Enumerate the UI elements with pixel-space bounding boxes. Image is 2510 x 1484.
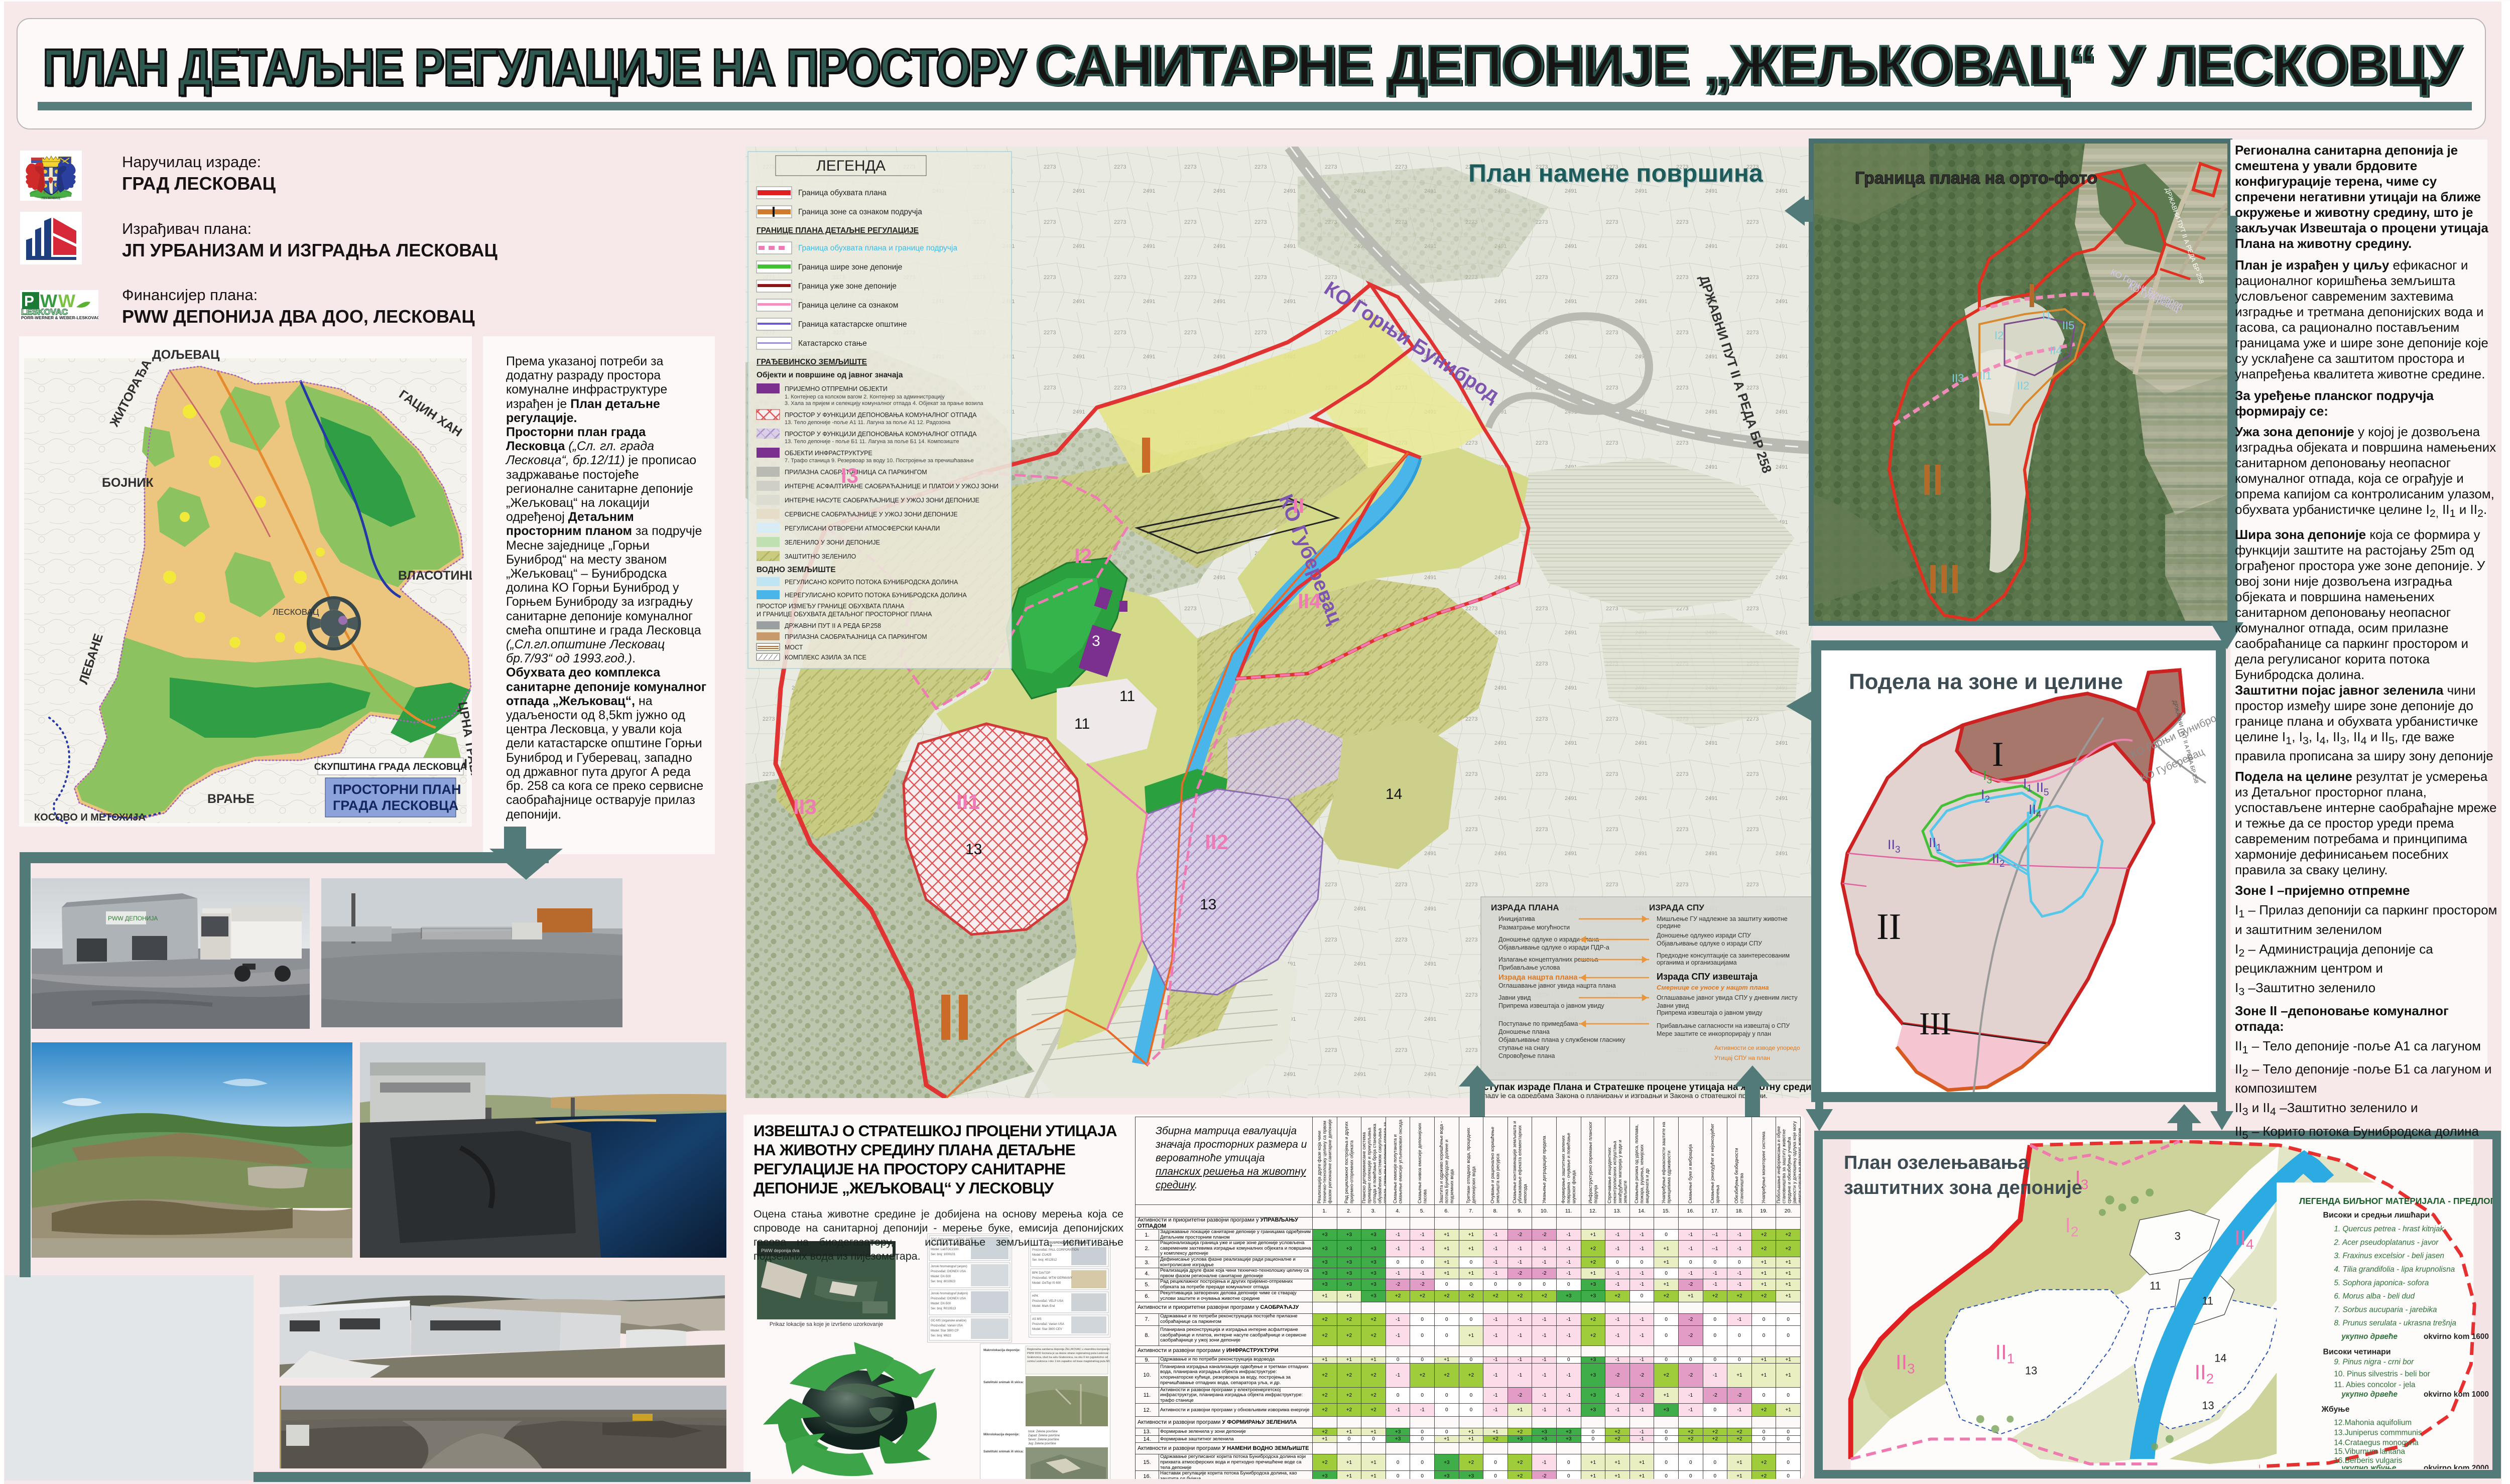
svg-text:Припрема извештаја о јавном ув: Припрема извештаја о јавном увиду [1657, 1009, 1763, 1016]
svg-text:11: 11 [1074, 716, 1090, 732]
svg-text:ВОДНО ЗЕМЉИШТЕ: ВОДНО ЗЕМЉИШТЕ [757, 566, 836, 574]
svg-text:Јавни увид: Јавни увид [1498, 994, 1531, 1001]
svg-text:ПРИЈЕМНО ОТПРЕМНИ ОБЈЕКТИ: ПРИЈЕМНО ОТПРЕМНИ ОБЈЕКТИ [785, 385, 888, 392]
svg-text:НЕРЕГУЛИСАНО КОРИТО ПОТОКА БУН: НЕРЕГУЛИСАНО КОРИТО ПОТОКА БУНИБРОДСКА Д… [785, 592, 967, 599]
svg-text:II: II [1876, 906, 1901, 948]
svg-text:Model: Star 3800 CEV: Model: Star 3800 CEV [1032, 1328, 1062, 1331]
svg-text:Смернице се уносе у нацрт план: Смернице се уносе у нацрт плана [1657, 984, 1769, 991]
svg-text:Доношење одлукео изради СПУ: Доношење одлукео изради СПУ [1657, 932, 1751, 939]
svg-text:Model: OxiTop IS 600: Model: OxiTop IS 600 [1032, 1282, 1061, 1285]
svg-text:РЕГУЛИСАНО КОРИТО ПОТОКА БУНИБ: РЕГУЛИСАНО КОРИТО ПОТОКА БУНИБРОДСКА ДОЛ… [785, 579, 958, 586]
svg-text:Jug: Zelene površine: Jug: Zelene površine [1028, 1442, 1056, 1445]
svg-text:ИНТЕРНЕ АСФАЛТИРАНЕ САОБРАЋАЈН: ИНТЕРНЕ АСФАЛТИРАНЕ САОБРАЋАЈНИЦЕ И ПЛАТ… [785, 483, 998, 490]
svg-text:III: III [1919, 1006, 1951, 1041]
svg-text:ПРОСТОРНИ ПЛАН: ПРОСТОРНИ ПЛАН [333, 782, 461, 797]
svg-text:Istok: Zelene površine: Istok: Zelene površine [1028, 1430, 1058, 1433]
svg-text:II4: II4 [1298, 589, 1321, 613]
svg-text:Објављивање плана у службеном: Објављивање плана у службеном гласнику [1498, 1036, 1625, 1043]
svg-text:9. Pinus nigra - crni bor: 9. Pinus nigra - crni bor [2334, 1358, 2414, 1367]
svg-text:Граница шире зоне депоније: Граница шире зоне депоније [798, 263, 902, 272]
svg-text:okvirno kom 2000: okvirno kom 2000 [2424, 1464, 2489, 1469]
svg-text:ЛЕСКОВАЦ: ЛЕСКОВАЦ [273, 607, 319, 617]
svg-text:ЛЕСКОВАЦ: ЛЕСКОВАЦ [41, 196, 60, 200]
svg-text:Proizvođač: Varian USA: Proizvođač: Varian USA [1032, 1323, 1064, 1326]
svg-text:Proizvođač: Varian USA: Proizvođač: Varian USA [931, 1324, 963, 1327]
svg-text:ПРОСТОР ИЗМЕЂУ ГРАНИЦЕ ОБУХВАТ: ПРОСТОР ИЗМЕЂУ ГРАНИЦЕ ОБУХВАТА ПЛАНА [757, 603, 905, 610]
svg-text:7. Трафо станица 9. Резервоар: 7. Трафо станица 9. Резервоар за воду 10… [785, 458, 974, 464]
svg-text:4. Tilia grandifolia - lipa kr: 4. Tilia grandifolia - lipa krupnolisna [2334, 1265, 2455, 1274]
svg-text:ПРОСТОР У ФУНКЦИЈИ ДЕПОНОВАЊА: ПРОСТОР У ФУНКЦИЈИ ДЕПОНОВАЊА КОМУНАЛНОГ… [785, 431, 977, 438]
svg-text:13: 13 [965, 841, 982, 858]
svg-text:II4: II4 [2050, 344, 2062, 357]
svg-text:13: 13 [1200, 896, 1216, 913]
svg-text:Жбуње: Жбуње [2321, 1405, 2350, 1414]
svg-text:ИНТЕРНЕ НАСУТЕ САОБРАЋАЈНИЦЕ У: ИНТЕРНЕ НАСУТЕ САОБРАЋАЈНИЦЕ У УЖОЈ ЗОНИ… [785, 497, 979, 504]
svg-text:ГРАДА ЛЕСКОВЦА: ГРАДА ЛЕСКОВЦА [333, 798, 458, 813]
svg-text:13. Тело депоније - поље Б1: 13. Тело депоније - поље Б1 11. Лагуна з… [785, 439, 959, 445]
svg-text:ДРЖАВНИ ПУТ II А РЕДА БР.258: ДРЖАВНИ ПУТ II А РЕДА БР.258 [785, 622, 881, 629]
svg-text:3. Хала за пријем и селекцију: 3. Хала за пријем и селекцију комуналног… [785, 400, 983, 407]
svg-text:11: 11 [2202, 1295, 2213, 1307]
svg-text:Граница целине са ознаком: Граница целине са ознаком [798, 301, 898, 310]
svg-text:Утицај СПУ на план: Утицај СПУ на план [1714, 1054, 1770, 1061]
svg-text:Објављивање одлуке о изради СП: Објављивање одлуке о изради СПУ [1657, 940, 1762, 947]
svg-text:13: 13 [2202, 1399, 2214, 1412]
svg-text:Спровођење плана: Спровођење плана [1498, 1052, 1555, 1059]
svg-text:okvirno kom 1600: okvirno kom 1600 [2424, 1332, 2489, 1341]
svg-text:ЗЕЛЕНИЛО У ЗОНИ ДЕПОНИЈЕ: ЗЕЛЕНИЛО У ЗОНИ ДЕПОНИЈЕ [785, 539, 880, 546]
svg-text:13. Тело депоније -поље А1 1: 13. Тело депоније -поље А1 11. Лагуна за… [785, 420, 951, 426]
svg-text:Sever: Zelene površine: Sever: Zelene površine [1028, 1438, 1059, 1441]
svg-text:СЕРВИСНЕ САОБРАЋАЈНИЦЕ У УЖОЈ: СЕРВИСНЕ САОБРАЋАЈНИЦЕ У УЖОЈ ЗОНИ ДЕПОН… [785, 511, 958, 518]
svg-text:ВРАЊЕ: ВРАЊЕ [207, 792, 255, 806]
svg-text:I: I [1992, 735, 2003, 774]
svg-text:Makrolokacija deponije:: Makrolokacija deponije: [983, 1348, 1021, 1352]
svg-text:Мишљење ГУ надлежне за заштиту: Мишљење ГУ надлежне за заштиту животне [1657, 915, 1788, 922]
svg-text:ИЗРАДА ПЛАНА: ИЗРАДА ПЛАНА [1491, 903, 1559, 912]
svg-text:КОМПЛЕКС АЗИЛА ЗА ПСЕ: КОМПЛЕКС АЗИЛА ЗА ПСЕ [785, 654, 866, 661]
svg-text:HPK: HPK [1032, 1295, 1038, 1298]
svg-text:Мере заштите се инкорпорирају: Мере заштите се инкорпорирају у план [1657, 1030, 1771, 1037]
svg-text:3. Fraxinus excelsior - beli j: 3. Fraxinus excelsior - beli jasen [2334, 1252, 2444, 1260]
svg-text:1. Контејнер са колском вагом: 1. Контејнер са колском вагом 2. Контејн… [785, 394, 945, 400]
svg-text:1. Quercus petrea - hrast kit: 1. Quercus petrea - hrast kitnjak [2334, 1225, 2444, 1234]
svg-text:Regionalna sanitarna deponija: Regionalna sanitarna deponija ŽELJKOVAC … [1027, 1347, 1109, 1351]
svg-text:centra Leskovca i oko 1 km zap: centra Leskovca i oko 1 km zapadno od tr… [1027, 1360, 1110, 1363]
svg-text:Граница уже зоне депоније: Граница уже зоне депоније [798, 282, 897, 291]
svg-text:II: II [1293, 494, 1304, 517]
svg-text:Proizvođač: WTW GERMANY: Proizvođač: WTW GERMANY [1032, 1277, 1072, 1280]
svg-text:okvirno kom 1000: okvirno kom 1000 [2424, 1390, 2489, 1399]
svg-text:AS MS: AS MS [1032, 1318, 1042, 1321]
svg-text:11: 11 [2150, 1280, 2161, 1292]
svg-text:2. Acer pseudoplatanus - javo: 2. Acer pseudoplatanus - javor [2333, 1238, 2439, 1247]
svg-text:Високи четинари: Високи четинари [2323, 1348, 2391, 1357]
svg-text:РЕГУЛИСАНИ ОТВОРЕНИ АТМОСФЕРСК: РЕГУЛИСАНИ ОТВОРЕНИ АТМОСФЕРСКИ КАНАЛИ [785, 525, 940, 532]
svg-text:II3: II3 [793, 795, 817, 819]
svg-text:Активности се изводе упоредо: Активности се изводе упоредо [1714, 1044, 1800, 1051]
svg-text:ОБЈЕКТИ ИНФРАСТРУКТУРЕ: ОБЈЕКТИ ИНФРАСТРУКТУРЕ [785, 450, 872, 457]
svg-text:Model: DX-500: Model: DX-500 [931, 1302, 951, 1305]
svg-text:Израда СПУ извештаја: Израда СПУ извештаја [1657, 972, 1758, 982]
svg-text:Граница зоне са ознаком подруч: Граница зоне са ознаком подручја [798, 208, 922, 216]
svg-text:Граница обухвата плана: Граница обухвата плана [798, 189, 887, 197]
svg-text:Model: Mark End: Model: Mark End [1032, 1305, 1055, 1308]
svg-text:Поступак израде Плана и Страте: Поступак израде Плана и Стратешке процен… [1471, 1082, 1813, 1093]
svg-text:средине: средине [1657, 922, 1681, 929]
svg-text:ГРАЂЕВИНСКО ЗЕМЉИШТЕ: ГРАЂЕВИНСКО ЗЕМЉИШТЕ [757, 358, 867, 366]
svg-text:Ser. broj: R010513: Ser. broj: R010513 [931, 1307, 956, 1310]
svg-text:Прибављање услова: Прибављање услова [1498, 964, 1560, 971]
svg-text:PORR-WERNER & WEBER-LESKOVAC: PORR-WERNER & WEBER-LESKOVAC [21, 315, 98, 320]
svg-text:II2: II2 [2017, 379, 2029, 392]
svg-text:II1: II1 [956, 790, 980, 814]
svg-text:Прибављање сагласности на изве: Прибављање сагласности на извештај о СПУ [1657, 1022, 1790, 1029]
svg-text:10. Pinus silvestris - beli b: 10. Pinus silvestris - beli bor [2334, 1370, 2430, 1378]
svg-text:11. Abies concolor - jela: 11. Abies concolor - jela [2334, 1381, 2416, 1389]
svg-text:укупно дрвеће: укупно дрвеће [2341, 1390, 2398, 1399]
svg-text:Proizvođač: DIONEX USA: Proizvođač: DIONEX USA [931, 1270, 966, 1273]
svg-text:I2: I2 [1994, 329, 2003, 342]
svg-text:Граница обухвата плана и грани: Граница обухвата плана и границе подручј… [798, 244, 957, 252]
svg-text:14.Crataegus monogyna: 14.Crataegus monogyna [2334, 1438, 2419, 1447]
svg-text:Разматрање могућности: Разматрање могућности [1498, 924, 1570, 931]
svg-text:PWW DOO locirana je sa desne s: PWW DOO locirana je sa desne strane regi… [1027, 1352, 1110, 1355]
svg-text:ступање на снагу: ступање на снагу [1498, 1044, 1550, 1051]
svg-text:Jonski hromatograf (anjoni): Jonski hromatograf (anjoni) [931, 1265, 967, 1268]
svg-text:3: 3 [1092, 633, 1100, 649]
svg-text:Објекти и површине од јавног з: Објекти и површине од јавног значаја [757, 371, 903, 379]
svg-text:Satelitski snimak ili skica:: Satelitski snimak ili skica: [983, 1450, 1024, 1453]
svg-text:Припрема извештаја о јавном ув: Припрема извештаја о јавном увиду [1498, 1002, 1604, 1009]
svg-text:ПРИЛАЗНА САОБРАЋАЈНИЦА СА ПАРК: ПРИЛАЗНА САОБРАЋАЈНИЦА СА ПАРКИНГОМ [785, 633, 927, 640]
svg-text:I3: I3 [841, 464, 858, 487]
svg-text:6. Morus alba - beli dud: 6. Morus alba - beli dud [2334, 1292, 2415, 1301]
svg-text:I2: I2 [1074, 544, 1092, 568]
svg-text:Оглашавање јавног увида нацрта: Оглашавање јавног увида нацрта плана [1498, 982, 1616, 989]
svg-text:Објављивање одлуке о изради ПД: Објављивање одлуке о изради ПДР-а [1498, 944, 1609, 951]
svg-text:14: 14 [1386, 786, 1402, 802]
svg-text:ДОЉЕВАЦ: ДОЉЕВАЦ [152, 348, 220, 362]
svg-text:13: 13 [2025, 1364, 2037, 1377]
svg-text:Доношење плана: Доношење плана [1498, 1028, 1550, 1035]
svg-text:И ГРАНИЦЕ ОБУХВАТА ДЕТАЉНОГ П: И ГРАНИЦЕ ОБУХВАТА ДЕТАЉНОГ ПРОСТОРНОГ П… [757, 611, 932, 618]
svg-text:Високи и средњи лишћари: Високи и средњи лишћари [2323, 1211, 2430, 1220]
svg-text:BPK DArTOP: BPK DArTOP [1032, 1272, 1050, 1275]
svg-text:II3: II3 [1952, 372, 1964, 384]
svg-text:БОЈНИК: БОЈНИК [102, 476, 154, 490]
svg-text:II5: II5 [2062, 319, 2074, 332]
svg-text:13.Juniperus commmunis: 13.Juniperus commmunis [2334, 1429, 2422, 1437]
svg-text:Proizvođač: VELP USA: Proizvođač: VELP USA [1032, 1300, 1063, 1303]
svg-text:укупно дрвеће: укупно дрвеће [2341, 1332, 2398, 1341]
svg-text:Satelitski snimak ili skica:: Satelitski snimak ili skica: [983, 1381, 1024, 1384]
svg-text:7. Sorbus aucuparia - jarebika: 7. Sorbus aucuparia - jarebika [2334, 1305, 2437, 1314]
svg-text:Ser. broj: 8010923: Ser. broj: 8010923 [931, 1280, 956, 1283]
svg-text:ПРОСТОР У ФУНКЦИЈИ ДЕПОНОВАЊА: ПРОСТОР У ФУНКЦИЈИ ДЕПОНОВАЊА КОМУНАЛНОГ… [785, 412, 977, 419]
svg-text:Grabovnica, idući ka selu Grab: Grabovnica, idući ka selu Grabovnica, na… [1027, 1356, 1108, 1359]
svg-text:Поступање по примедбама: Поступање по примедбама [1498, 1020, 1578, 1027]
svg-text:15.Viburnum lantana: 15.Viburnum lantana [2334, 1447, 2405, 1456]
svg-text:Jonski hromatograf (katjoni): Jonski hromatograf (katjoni) [931, 1292, 968, 1295]
svg-text:органима и организацијама: органима и организацијама [1657, 959, 1737, 966]
svg-text:ГРАНИЦЕ ПЛАНА ДЕТАЉНЕ РЕГУЛАЦ: ГРАНИЦЕ ПЛАНА ДЕТАЉНЕ РЕГУЛАЦИЈЕ [757, 226, 919, 235]
svg-text:3: 3 [2175, 1230, 2181, 1242]
svg-text:I1: I1 [2042, 309, 2051, 322]
svg-text:ЛЕГЕНДА: ЛЕГЕНДА [816, 158, 886, 174]
svg-text:II2: II2 [1205, 830, 1228, 854]
svg-text:8. Prunus serulata - ukrasna t: 8. Prunus serulata - ukrasna trešnja [2334, 1319, 2456, 1327]
svg-text:Zapad: Zelene površine: Zapad: Zelene površine [1028, 1434, 1060, 1437]
svg-text:Граница катастарске општине: Граница катастарске општине [798, 320, 907, 329]
svg-text:ЛЕГЕНДА БИЉНОГ МАТЕРИЈАЛА - ПР: ЛЕГЕНДА БИЉНОГ МАТЕРИЈАЛА - ПРЕДЛОГ [2299, 1196, 2492, 1206]
svg-text:у складу је са одредбама Закон: у складу је са одредбама Закона о планир… [1471, 1092, 1768, 1098]
svg-text:ВЛАСОТИНЦЕ: ВЛАСОТИНЦЕ [398, 569, 472, 583]
svg-text:14: 14 [2214, 1352, 2226, 1365]
svg-text:Оглашавање јавног увида СПУ у: Оглашавање јавног увида СПУ у дневним ли… [1657, 994, 1798, 1001]
svg-text:Model: Star 3800 CP: Model: Star 3800 CP [931, 1329, 959, 1332]
svg-text:Граница плана на орто-фото: Граница плана на орто-фото [1855, 169, 2097, 188]
svg-text:Proizvođač: DIONEX USA: Proizvođač: DIONEX USA [931, 1297, 966, 1300]
svg-text:Предходне консултације са заин: Предходне консултације са заинтересовани… [1657, 952, 1790, 959]
svg-text:Израда нацрта плана: Израда нацрта плана [1498, 973, 1578, 982]
svg-text:GC-MS (organske analize): GC-MS (organske analize) [931, 1319, 966, 1322]
svg-text:СКУПШТИНА ГРАДА ЛЕСКОВЦА: СКУПШТИНА ГРАДА ЛЕСКОВЦА [314, 762, 467, 772]
svg-text:укупно жбуње: укупно жбуње [2341, 1464, 2397, 1469]
svg-text:Model: DX-500: Model: DX-500 [931, 1275, 951, 1278]
svg-text:Mikrolokacija deponije:: Mikrolokacija deponije: [983, 1433, 1020, 1436]
svg-text:Иницијатива: Иницијатива [1498, 915, 1535, 922]
svg-text:ЗАШТИТНО ЗЕЛЕНИЛО: ЗАШТИТНО ЗЕЛЕНИЛО [785, 553, 856, 560]
svg-text:5. Sophora japonica- sofora: 5. Sophora japonica- sofora [2334, 1279, 2429, 1287]
svg-text:12.Mahonia aquifolium: 12.Mahonia aquifolium [2334, 1419, 2412, 1427]
svg-text:Јавни увид: Јавни увид [1657, 1002, 1689, 1009]
svg-text:ИЗРАДА СПУ: ИЗРАДА СПУ [1649, 903, 1704, 912]
svg-text:II1: II1 [1979, 369, 1991, 382]
svg-text:Катастарско стање: Катастарско стање [798, 339, 867, 348]
svg-text:План намене површина: План намене површина [1468, 159, 1764, 187]
svg-text:КОСОВО И МЕТОХИЈА: КОСОВО И МЕТОХИЈА [34, 812, 146, 823]
svg-text:11: 11 [1119, 688, 1135, 705]
svg-text:МОСТ: МОСТ [785, 644, 803, 651]
svg-text:PWW ДЕПОНИЈА: PWW ДЕПОНИЈА [108, 915, 158, 922]
